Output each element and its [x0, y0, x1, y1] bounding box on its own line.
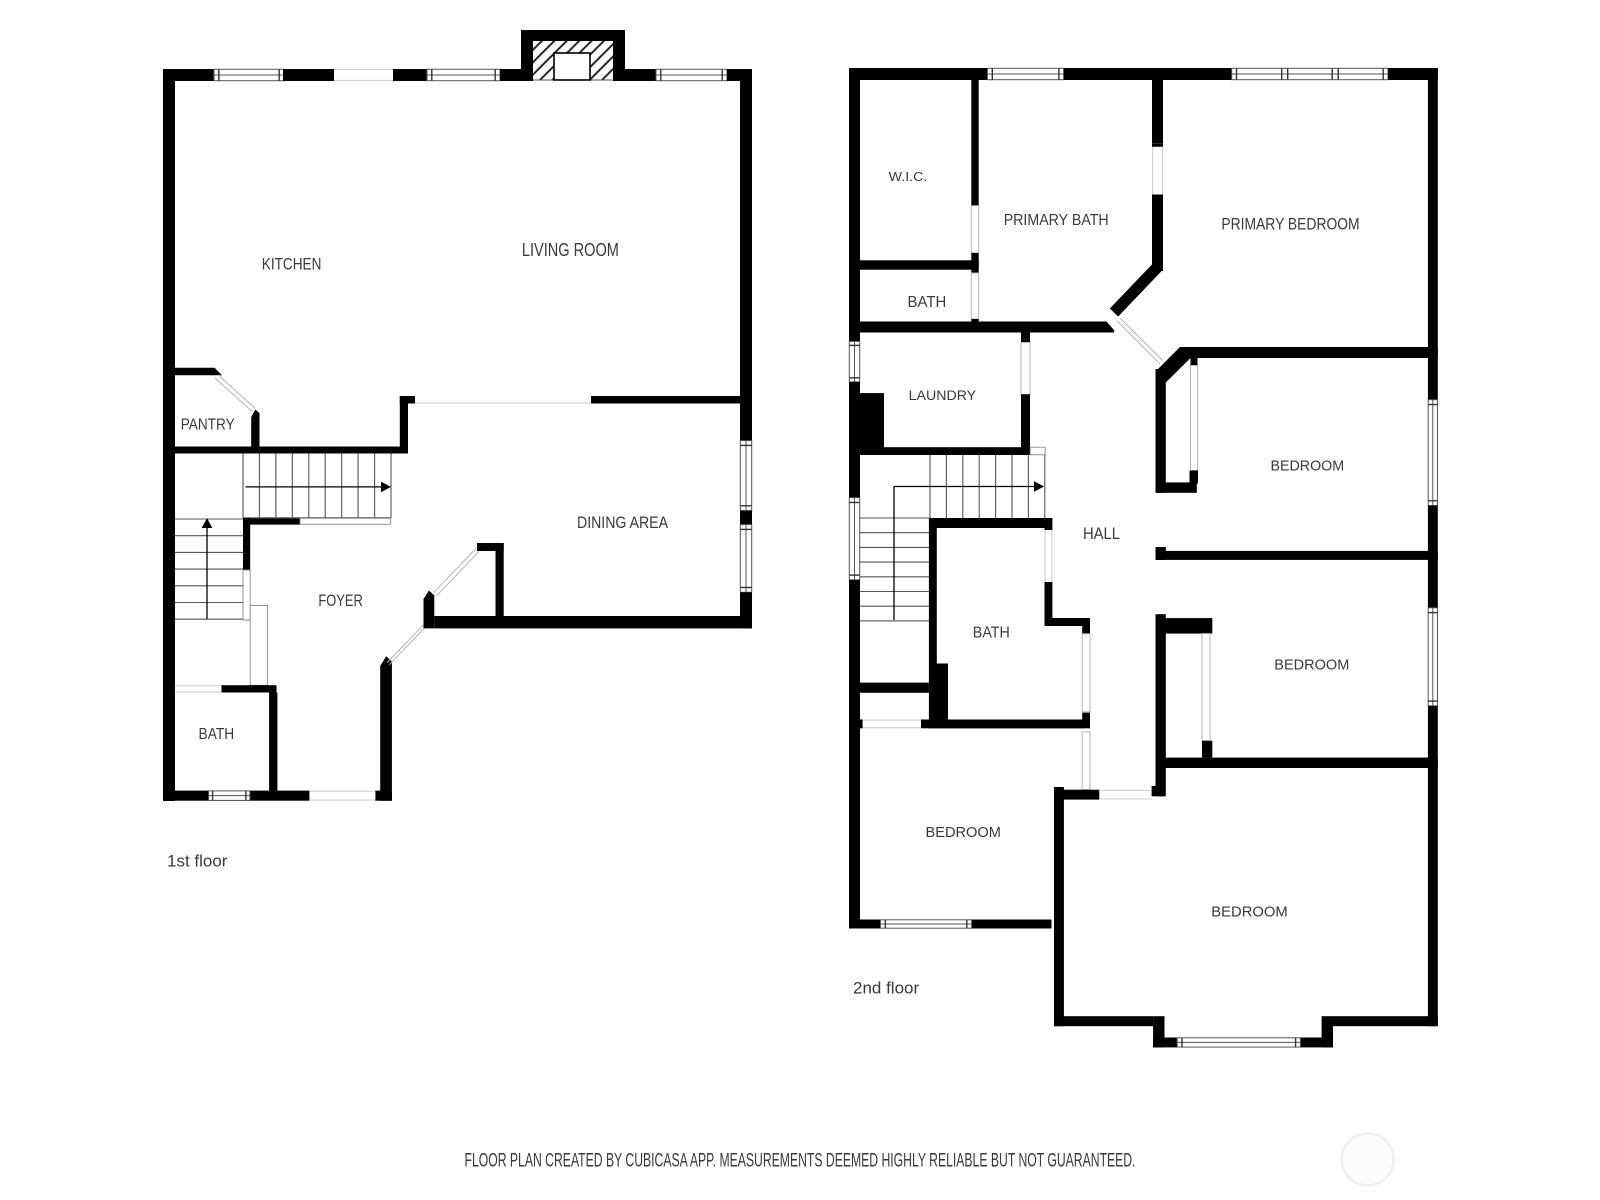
svg-text:LIVING ROOM: LIVING ROOM	[522, 240, 619, 260]
svg-text:FOYER: FOYER	[318, 592, 362, 610]
svg-text:BEDROOM: BEDROOM	[1271, 459, 1345, 475]
svg-text:BATH: BATH	[973, 625, 1010, 642]
svg-text:BATH: BATH	[199, 726, 235, 743]
svg-text:BATH: BATH	[908, 294, 947, 311]
svg-text:DINING AREA: DINING AREA	[577, 514, 668, 532]
svg-text:HALL: HALL	[1083, 524, 1120, 543]
svg-text:PANTRY: PANTRY	[181, 417, 235, 434]
svg-text:BEDROOM: BEDROOM	[1211, 904, 1288, 921]
svg-text:2nd floor: 2nd floor	[853, 979, 919, 998]
svg-text:BEDROOM: BEDROOM	[926, 825, 1001, 841]
svg-text:W.I.C.: W.I.C.	[889, 169, 928, 184]
svg-text:FLOOR PLAN CREATED BY CUBICASA: FLOOR PLAN CREATED BY CUBICASA APP. MEAS…	[465, 1151, 1136, 1172]
svg-text:LAUNDRY: LAUNDRY	[909, 388, 977, 404]
svg-text:1st floor: 1st floor	[167, 852, 228, 871]
svg-text:BEDROOM: BEDROOM	[1274, 658, 1349, 674]
svg-text:PRIMARY BATH: PRIMARY BATH	[1004, 212, 1109, 229]
svg-text:PRIMARY BEDROOM: PRIMARY BEDROOM	[1221, 215, 1359, 234]
svg-text:KITCHEN: KITCHEN	[262, 255, 322, 274]
